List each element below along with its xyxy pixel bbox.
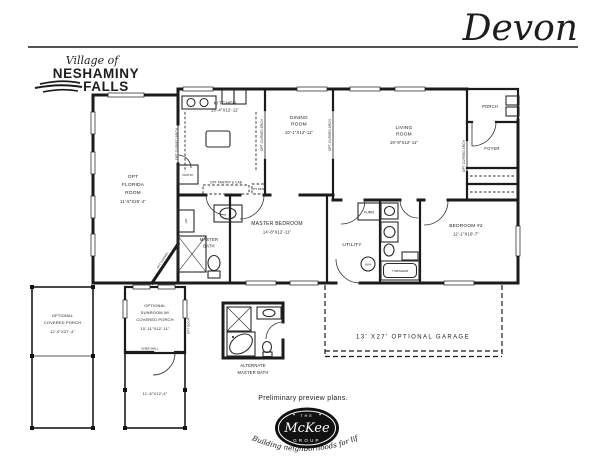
sunroom-dims: 10'-11"X12'-11"	[140, 326, 170, 331]
bedroom2-label: BEDROOM #2	[449, 223, 483, 229]
covered-porch-label: OPTIONAL	[52, 313, 74, 318]
hall-bath-door-arc	[400, 200, 418, 218]
toilet-icon	[263, 342, 272, 353]
furnace-label: FURN	[364, 211, 374, 215]
preliminary-note: Preliminary preview plans.	[258, 395, 348, 402]
knee-wall-label: KNEE WALL	[141, 347, 158, 351]
logo-the: THE	[300, 413, 313, 418]
living-label2: ROOM	[396, 132, 412, 138]
sunroom-label2: SUNROOM W/	[141, 310, 170, 315]
opt-curved-arch-label: OPT CURVED ARCH	[462, 139, 466, 172]
optional-garage: 13' X27' OPTIONAL GARAGE	[325, 285, 502, 357]
logo-dot-icon	[319, 414, 321, 416]
florida-label3: ROOM	[125, 190, 141, 196]
covered-porch-label2: COVERED PORCH	[44, 320, 81, 325]
alt-master-bath-label2: MASTER BATH	[237, 370, 268, 375]
optional-covered-porch: OPTIONAL COVERED PORCH 12'-0"X27'-4"	[30, 285, 95, 430]
bedroom2-dims: 12'-1"X10'-7"	[453, 232, 479, 237]
vanity-sink-icon	[385, 207, 395, 216]
floorplan-page: Devon Village of NESHAMINY FALLS	[0, 0, 600, 464]
opt-curved-arch-label: OPT CURVED ARCH	[260, 118, 264, 151]
water-heater-label: W/H	[365, 263, 371, 267]
pantry-label: PANTRY	[182, 173, 193, 177]
garden-tub-icon	[226, 330, 256, 358]
vanity	[381, 203, 398, 219]
shower-drain-icon	[384, 227, 395, 238]
utility-exterior-door-arc	[336, 259, 360, 283]
alternate-master-bath: ALTERNATE MASTER BATH	[223, 303, 283, 375]
logo-group: GROUP	[293, 438, 321, 443]
master-bath-label: MASTER	[200, 237, 218, 242]
tub-faucet-icon	[232, 336, 234, 338]
dining-dims: 10'-1"X12'-11"	[285, 130, 314, 135]
sunroom-lower-dims: 11'-6"X12'-4"	[143, 391, 168, 396]
optional-sunroom: OPTIONAL SUNROOM W/ COVERED PORCH 10'-11…	[123, 285, 191, 430]
opt-pantry-cab-label: OPT PANTRY & CAB	[210, 181, 242, 185]
dining-label2: ROOM	[291, 122, 307, 128]
bedroom2-door-arc	[424, 201, 448, 225]
living-label: LIVING	[396, 125, 413, 131]
sink-bowl-icon	[187, 99, 195, 107]
sunroom-label3: COVERED PORCH	[136, 317, 173, 322]
logo-dot-icon	[293, 414, 295, 416]
opt-pantry-cab-dashed	[203, 185, 249, 194]
sunroom-label: OPTIONAL	[144, 303, 166, 308]
plumbing-chase	[402, 252, 418, 260]
master-bedroom-door-arc	[240, 195, 264, 219]
shower-x-icon	[227, 307, 251, 331]
alt-bath-door-arc	[266, 322, 283, 339]
floorplan-canvas: Devon Village of NESHAMINY FALLS	[0, 0, 600, 464]
vanity-sink-icon	[263, 309, 275, 316]
sink-bowl-icon	[200, 99, 208, 107]
living-dims: 19'-9"X12'-11"	[390, 140, 419, 145]
opt-desk-label: OPT DESK	[251, 187, 265, 191]
kitchen-label: KITCHEN	[214, 101, 237, 107]
florida-label2: FLORIDA	[122, 182, 145, 188]
utility-label: UTILITY	[342, 242, 362, 248]
kitchen-hall-door-arc	[178, 155, 191, 168]
linen-label: LIN	[184, 219, 188, 224]
toilet-tank	[208, 271, 220, 278]
model-title: Devon	[462, 8, 578, 49]
alt-master-bath-label: ALTERNATE	[240, 363, 265, 368]
master-bedroom-label: MASTER BEDROOM	[251, 221, 303, 227]
toilet-icon	[208, 256, 220, 271]
florida-dims: 11'-5"X26'-4"	[120, 199, 146, 204]
toilet-icon	[384, 244, 394, 256]
community-logo: Village of NESHAMINY FALLS	[35, 54, 139, 94]
sunroom-door-arc	[153, 353, 175, 375]
master-bath-label2: BATH	[203, 244, 214, 249]
door-swings	[178, 122, 496, 283]
vanity-sink-icon	[220, 208, 236, 219]
opt-curved-arch-label: OPT CURVED ARCH	[175, 127, 179, 160]
opt-curved-arch-label: OPT CURVED ARCH	[328, 118, 332, 151]
logo-name: McKee	[283, 421, 330, 436]
foyer-label: FOYER	[484, 146, 499, 151]
vanity	[257, 307, 281, 319]
opt-counter-dashed	[185, 112, 256, 172]
kitchen-island	[206, 131, 230, 147]
master-bedroom-dims: 14'-8"X12'-11"	[263, 230, 292, 235]
florida-label: OPT	[128, 174, 138, 180]
dining-label: DINING	[290, 115, 308, 121]
porch-label: PORCH	[482, 104, 498, 109]
kitchen-dims: 13'-4"X12'-11"	[211, 108, 240, 113]
opt-door-label: OPT DOOR	[187, 317, 191, 334]
swoosh-icon	[35, 81, 82, 92]
community-name-2: FALLS	[83, 79, 129, 94]
covered-porch-dims: 12'-0"X27'-4"	[50, 329, 75, 334]
optional-garage-label: 13' X27' OPTIONAL GARAGE	[356, 335, 470, 341]
front-door-arc	[472, 122, 496, 146]
header: Devon Village of NESHAMINY FALLS	[28, 8, 578, 94]
tub-shower-label: TUB/SHWR	[392, 269, 409, 273]
